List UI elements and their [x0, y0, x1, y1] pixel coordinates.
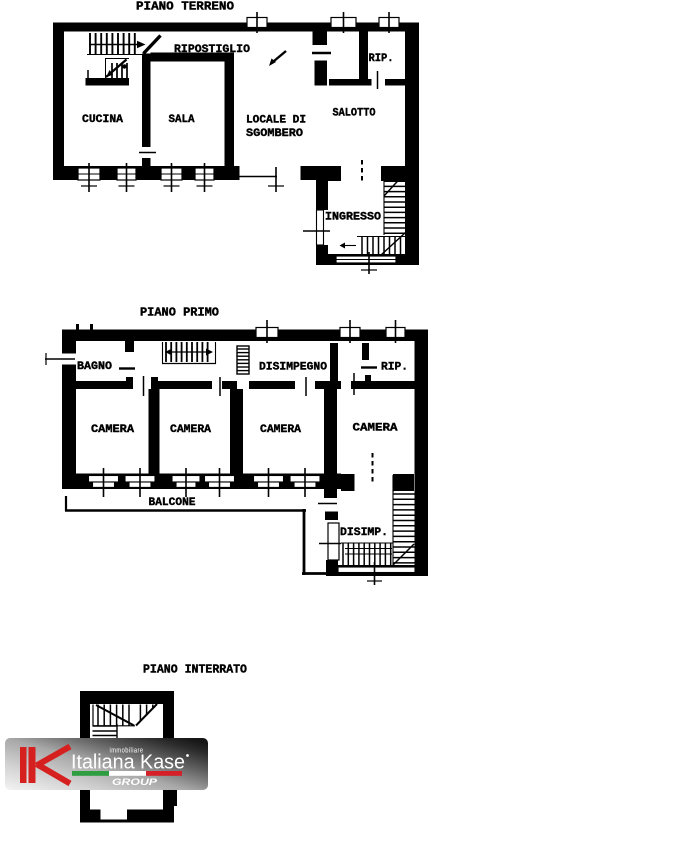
svg-text:RIPOSTIGLIO: RIPOSTIGLIO — [174, 44, 250, 56]
svg-text:CUCINA: CUCINA — [82, 114, 123, 126]
svg-text:CAMERA: CAMERA — [353, 423, 398, 435]
svg-text:RIP.: RIP. — [369, 53, 394, 65]
svg-text:DISIMP.: DISIMP. — [340, 527, 388, 539]
svg-text:BALCONE: BALCONE — [149, 497, 196, 509]
svg-text:Italiana Kase: Italiana Kase — [71, 752, 185, 774]
svg-text:LOCALE DI: LOCALE DI — [246, 115, 306, 127]
svg-text:SALOTTO: SALOTTO — [333, 108, 376, 120]
svg-text:BAGNO: BAGNO — [77, 361, 112, 373]
svg-text:GROUP: GROUP — [112, 777, 158, 788]
svg-text:RIP.: RIP. — [381, 362, 408, 374]
svg-text:CAMERA: CAMERA — [91, 424, 134, 436]
svg-text:CAMERA: CAMERA — [260, 424, 301, 436]
svg-text:PIANO INTERRATO: PIANO INTERRATO — [143, 664, 247, 677]
svg-text:DISIMPEGNO: DISIMPEGNO — [259, 362, 327, 374]
svg-text:PIANO TERRENO: PIANO TERRENO — [136, 1, 234, 14]
svg-text:SGOMBERO: SGOMBERO — [246, 128, 303, 140]
svg-text:INGRESSO: INGRESSO — [325, 212, 381, 224]
svg-text:PIANO PRIMO: PIANO PRIMO — [140, 307, 219, 320]
svg-text:CAMERA: CAMERA — [170, 424, 211, 436]
svg-text:SALA: SALA — [169, 114, 195, 126]
